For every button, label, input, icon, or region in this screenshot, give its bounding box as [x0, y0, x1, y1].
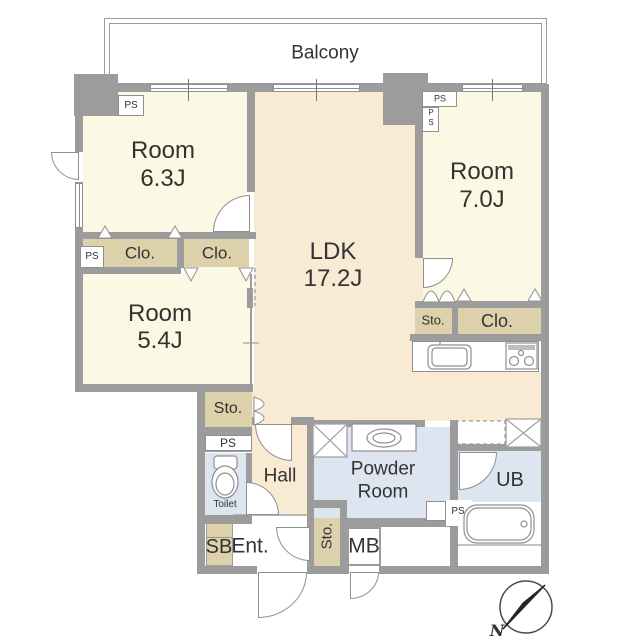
- ub-label: UB: [496, 470, 524, 490]
- washbasin-icon: [352, 424, 416, 451]
- north-label: N: [490, 623, 505, 639]
- toilet-icon: [212, 456, 238, 498]
- room-5-4-size: 5.4J: [137, 329, 182, 353]
- room-6-3-size: 6.3J: [140, 167, 185, 191]
- ps-label: PS: [124, 101, 137, 111]
- stove-icon: [506, 343, 537, 369]
- toilet-label: Toilet: [213, 500, 236, 510]
- room-7-0-label: Room: [450, 160, 514, 184]
- sb-label: SB: [206, 537, 233, 557]
- kitchen-sink-icon: [428, 342, 471, 369]
- refrigerator-space-marker: [506, 419, 541, 447]
- ps-label: PS: [434, 95, 446, 104]
- ps-label-p: P: [428, 109, 433, 117]
- ps-label: PS: [451, 507, 464, 517]
- storage-label: Sto.: [214, 401, 242, 417]
- ps-label: PS: [220, 437, 236, 449]
- north-compass-icon: [500, 581, 552, 633]
- ldk-label: LDK: [310, 240, 357, 264]
- powder-room-label: Room: [358, 483, 409, 502]
- entrance-label: Ent.: [231, 536, 268, 557]
- bathtub-icon: [464, 505, 534, 543]
- ldk-size: 17.2J: [304, 267, 363, 291]
- powder-room-label: Powder: [351, 460, 415, 479]
- balcony-label: Balcony: [291, 44, 359, 63]
- room-7-0-size: 7.0J: [459, 188, 504, 212]
- mb-label: MB: [348, 536, 380, 557]
- ps-label: PS: [85, 252, 98, 262]
- washer-pan-marker: [313, 424, 347, 457]
- floor-plan: Balcony Room 6.3J Room 5.4J Room 7.0J LD…: [0, 0, 640, 640]
- folding-door-icon: [254, 291, 455, 425]
- closet-label: Clo.: [481, 312, 513, 330]
- closet-label: Clo.: [202, 245, 232, 262]
- room-5-4-label: Room: [128, 302, 192, 326]
- storage-label: Sto.: [320, 523, 335, 550]
- room-6-3-label: Room: [131, 139, 195, 163]
- hall-label: Hall: [264, 467, 297, 486]
- ps-label-s: S: [428, 119, 433, 127]
- storage-label: Sto.: [421, 314, 444, 327]
- closet-label: Clo.: [125, 245, 155, 262]
